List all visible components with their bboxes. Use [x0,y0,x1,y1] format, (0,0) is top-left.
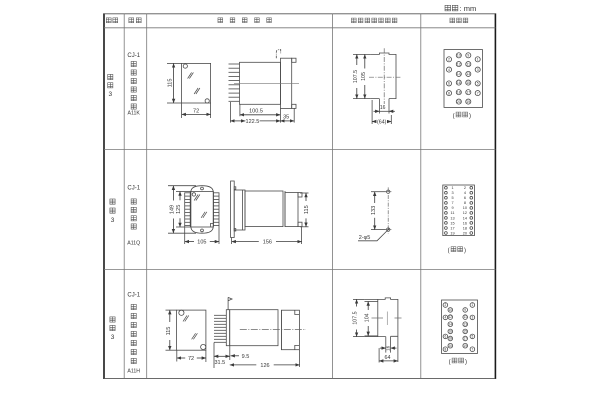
svg-text:3: 3 [111,334,115,341]
svg-text:64: 64 [385,355,391,361]
svg-text:13: 13 [466,72,470,76]
svg-text:12: 12 [449,315,453,319]
svg-text:13: 13 [463,322,467,326]
svg-text:16: 16 [463,221,467,225]
svg-text:19: 19 [466,100,470,104]
svg-text:8: 8 [464,201,466,205]
svg-text:2: 2 [464,186,466,190]
svg-text:): ) [464,248,466,254]
svg-text:115: 115 [166,327,172,336]
svg-text:A11Q: A11Q [127,241,140,247]
svg-text:72: 72 [193,108,199,114]
svg-text:A11K: A11K [128,110,141,116]
svg-text:7: 7 [472,347,474,351]
svg-text:20: 20 [457,100,461,104]
svg-text:3: 3 [477,68,479,72]
svg-text:9: 9 [467,54,469,58]
svg-text:CJ-1: CJ-1 [127,293,140,299]
svg-text:107.5: 107.5 [353,70,359,83]
svg-text:): ) [469,114,471,120]
svg-text:14: 14 [463,216,467,220]
svg-text:18: 18 [457,90,461,94]
svg-text:): ) [465,360,467,366]
svg-text:6: 6 [464,196,466,200]
svg-text:20: 20 [463,231,467,235]
svg-text:115: 115 [304,205,310,214]
svg-text:19: 19 [463,344,467,348]
svg-text:9: 9 [451,206,453,210]
svg-text:5: 5 [477,82,479,86]
svg-text:16: 16 [449,330,453,334]
svg-text:18: 18 [449,337,453,341]
svg-text:10: 10 [457,54,461,58]
svg-text:4: 4 [448,68,450,72]
svg-text:A11H: A11H [127,369,140,375]
svg-text:125: 125 [176,205,182,214]
svg-text:17: 17 [450,226,454,230]
svg-text:16: 16 [380,105,386,111]
svg-text:100.5: 100.5 [249,109,263,115]
svg-text:149: 149 [170,205,176,214]
svg-text:5: 5 [451,196,453,200]
svg-text:(: ( [453,114,455,120]
svg-text:11: 11 [451,211,455,215]
svg-text:(64): (64) [377,119,387,125]
svg-text:(: ( [449,360,451,366]
svg-text:1: 1 [472,303,474,307]
svg-text:9.5: 9.5 [242,354,250,360]
svg-text:12: 12 [457,62,461,66]
svg-text:4: 4 [464,191,466,195]
svg-text:15: 15 [466,81,470,85]
svg-text:2: 2 [448,58,450,62]
svg-text:20: 20 [449,344,453,348]
svg-text:115: 115 [167,79,173,88]
svg-text:7: 7 [477,91,479,95]
svg-text:5: 5 [472,335,474,339]
svg-text:12: 12 [463,211,467,215]
svg-text:mm: mm [464,4,477,13]
svg-text:CJ-1: CJ-1 [127,186,140,192]
svg-text:17: 17 [463,337,467,341]
svg-text:72: 72 [188,356,194,362]
svg-text:16: 16 [386,345,391,351]
svg-text:11: 11 [464,315,468,319]
svg-text::: : [460,6,462,13]
svg-text:18: 18 [463,226,467,230]
svg-text:16: 16 [457,81,461,85]
svg-text:105: 105 [197,240,206,246]
svg-text:15: 15 [450,221,454,225]
svg-text:15: 15 [463,330,467,334]
svg-text:126: 126 [260,363,269,369]
svg-text:3: 3 [111,217,115,224]
svg-text:17: 17 [466,90,470,94]
svg-text:CJ-1: CJ-1 [127,53,140,59]
svg-text:(: ( [448,248,450,254]
svg-text:3: 3 [451,191,453,195]
svg-text:4: 4 [445,316,447,320]
svg-text:104: 104 [364,313,370,322]
svg-text:19: 19 [450,231,454,235]
svg-text:2-φ5: 2-φ5 [359,235,371,241]
svg-text:31.5: 31.5 [214,360,225,366]
svg-text:7: 7 [451,201,453,205]
svg-text:2: 2 [445,303,447,307]
svg-text:10: 10 [449,308,453,312]
svg-text:35: 35 [283,115,289,121]
svg-text:8: 8 [445,347,447,351]
svg-text:14: 14 [457,72,461,76]
svg-text:1: 1 [451,186,453,190]
svg-text:6: 6 [448,82,450,86]
svg-text:6: 6 [445,335,447,339]
svg-text:156: 156 [263,240,272,246]
svg-text:3: 3 [108,91,112,98]
svg-text:14: 14 [449,322,453,326]
svg-text:8: 8 [448,91,450,95]
svg-text:122.5: 122.5 [246,119,260,125]
svg-text:107.5: 107.5 [353,311,359,324]
svg-text:10: 10 [463,206,467,210]
svg-text:105: 105 [361,72,367,81]
svg-text:13: 13 [450,216,454,220]
svg-text:133: 133 [371,206,377,215]
svg-text:1: 1 [477,58,479,62]
svg-text:9: 9 [464,308,466,312]
svg-text:11: 11 [467,62,471,66]
svg-text:3: 3 [472,316,474,320]
